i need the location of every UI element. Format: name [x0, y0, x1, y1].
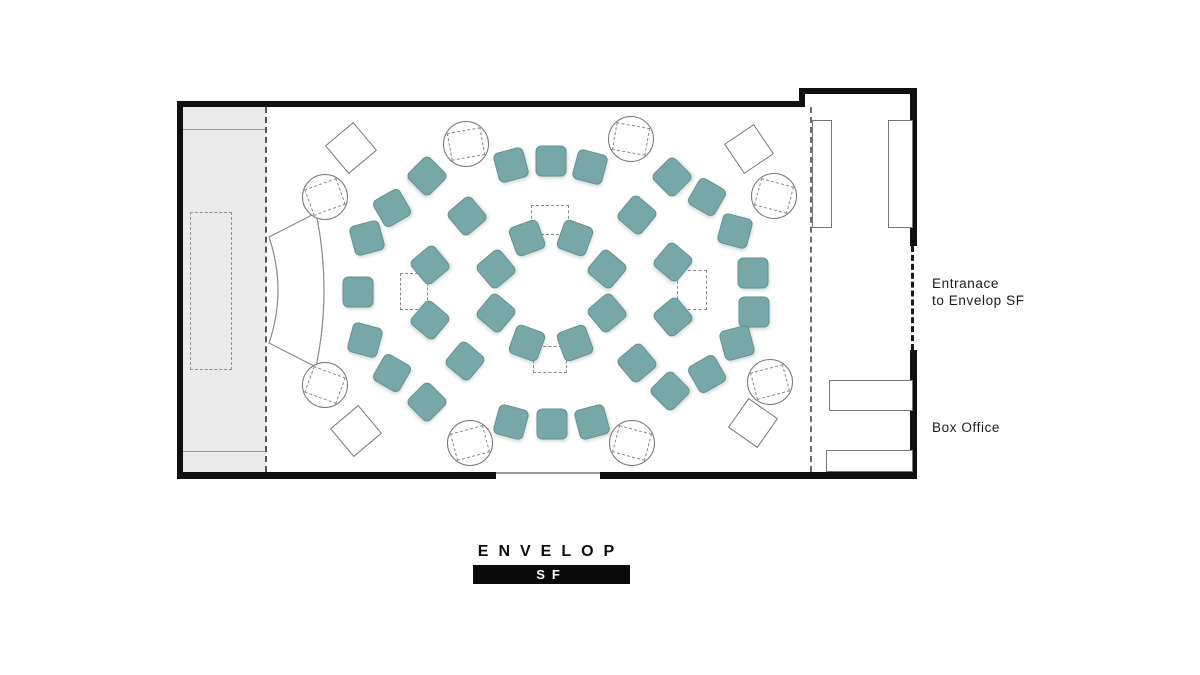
seat — [536, 146, 567, 177]
speaker-box-dashed — [750, 364, 790, 400]
speaker-stand-icon — [302, 174, 348, 220]
speaker-box-dashed — [304, 178, 346, 216]
speaker-box-dashed — [612, 122, 650, 155]
seat — [343, 277, 374, 308]
bench — [888, 120, 913, 228]
speaker-stand-icon — [751, 173, 797, 219]
speaker-box-dashed — [304, 366, 346, 404]
entrance-label: Entranace to Envelop SF — [932, 275, 1072, 309]
bench — [812, 120, 832, 228]
speaker-stand-icon — [609, 420, 655, 466]
box-office-label: Box Office — [932, 419, 1052, 436]
seat — [739, 297, 770, 328]
entrance-label-line2: to Envelop SF — [932, 292, 1072, 309]
floorplan-canvas: Entranace to Envelop SF Box Office ENVEL… — [0, 0, 1200, 675]
speaker-stand-icon — [443, 121, 489, 167]
speaker-box-dashed — [612, 425, 652, 461]
speaker-stand-icon — [747, 359, 793, 405]
logo-sf-badge: SF — [473, 565, 630, 584]
speaker-stand-icon — [608, 116, 654, 162]
logo-wordmark: ENVELOP — [458, 543, 644, 561]
speaker-box-dashed — [754, 178, 794, 214]
entrance-label-line1: Entranace — [932, 275, 1072, 292]
speaker-box-dashed — [447, 127, 485, 160]
bench — [826, 450, 913, 472]
seat — [537, 409, 568, 440]
speaker-stand-icon — [447, 420, 493, 466]
seat — [738, 258, 769, 289]
speaker-stand-icon — [302, 362, 348, 408]
speaker-box-dashed — [450, 425, 490, 461]
bench — [829, 380, 913, 411]
